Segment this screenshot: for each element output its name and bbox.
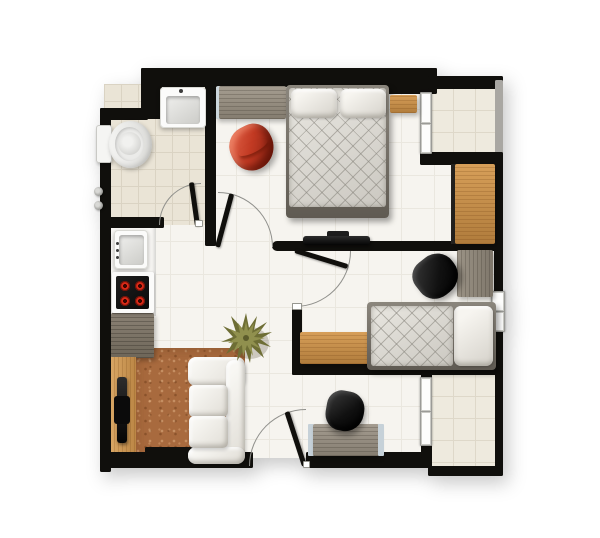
wardrobe-master [455, 164, 495, 244]
wall-balcony-top [428, 76, 503, 89]
burner-3 [119, 295, 131, 307]
tv-master [303, 236, 370, 245]
door-bedroom2-jamb [292, 303, 302, 310]
wall-terrace-east [495, 366, 503, 475]
wall-balcony-east [495, 80, 503, 156]
bath-faucet-dot [179, 89, 183, 93]
burner-2 [134, 280, 146, 292]
kitchen-faucet-dot-2 [116, 249, 119, 252]
shower-knob-top [94, 187, 103, 196]
floor-plan-stage [0, 0, 600, 538]
bed-single-pillow [454, 306, 493, 366]
kitchen-faucet-dot-3 [116, 256, 119, 259]
bed-single-mattress [371, 306, 453, 366]
floor-plan [0, 0, 600, 538]
dresser-master [216, 86, 286, 119]
nightstand-master [390, 95, 417, 113]
floor-balcony-north [431, 88, 496, 154]
kitchen-faucet-dot-1 [116, 242, 119, 245]
wall-bottom-chunk [145, 447, 193, 468]
sofa-cushion-1 [189, 385, 228, 417]
dresser-bedroom2 [457, 250, 493, 297]
sofa-cushion-2 [189, 416, 228, 448]
wall-bath-bottom [100, 217, 164, 228]
shower-knob-bottom [94, 201, 103, 210]
plant-icon [219, 311, 273, 365]
bed-master-pillow-right [340, 89, 386, 118]
toilet-seat-circle [118, 132, 141, 155]
sofa-armrest-bottom [188, 447, 245, 464]
door-entry-jamb [303, 461, 310, 468]
plant-living [219, 311, 273, 365]
door-bath-jamb [195, 220, 203, 227]
burner-4 [134, 295, 146, 307]
kitchen-sink-basin [119, 235, 144, 265]
wall-terrace-bottom [428, 466, 503, 476]
sofa-backrest [226, 360, 245, 460]
burner-1 [119, 280, 131, 292]
bath-sink-basin [166, 96, 200, 124]
wall-terrace-stub-bottom [421, 445, 432, 458]
bed-master-pillow-left [291, 89, 337, 118]
wall-bath-east [205, 84, 216, 246]
desk-south-trim-right [378, 424, 384, 456]
window-terrace-divider [420, 377, 432, 446]
tv-living-center [114, 396, 130, 424]
kitchen-counter-low [111, 313, 154, 358]
cabinet-bedroom2 [300, 332, 370, 364]
window-master-balcony [420, 92, 432, 154]
floor-terrace-south [431, 374, 496, 467]
